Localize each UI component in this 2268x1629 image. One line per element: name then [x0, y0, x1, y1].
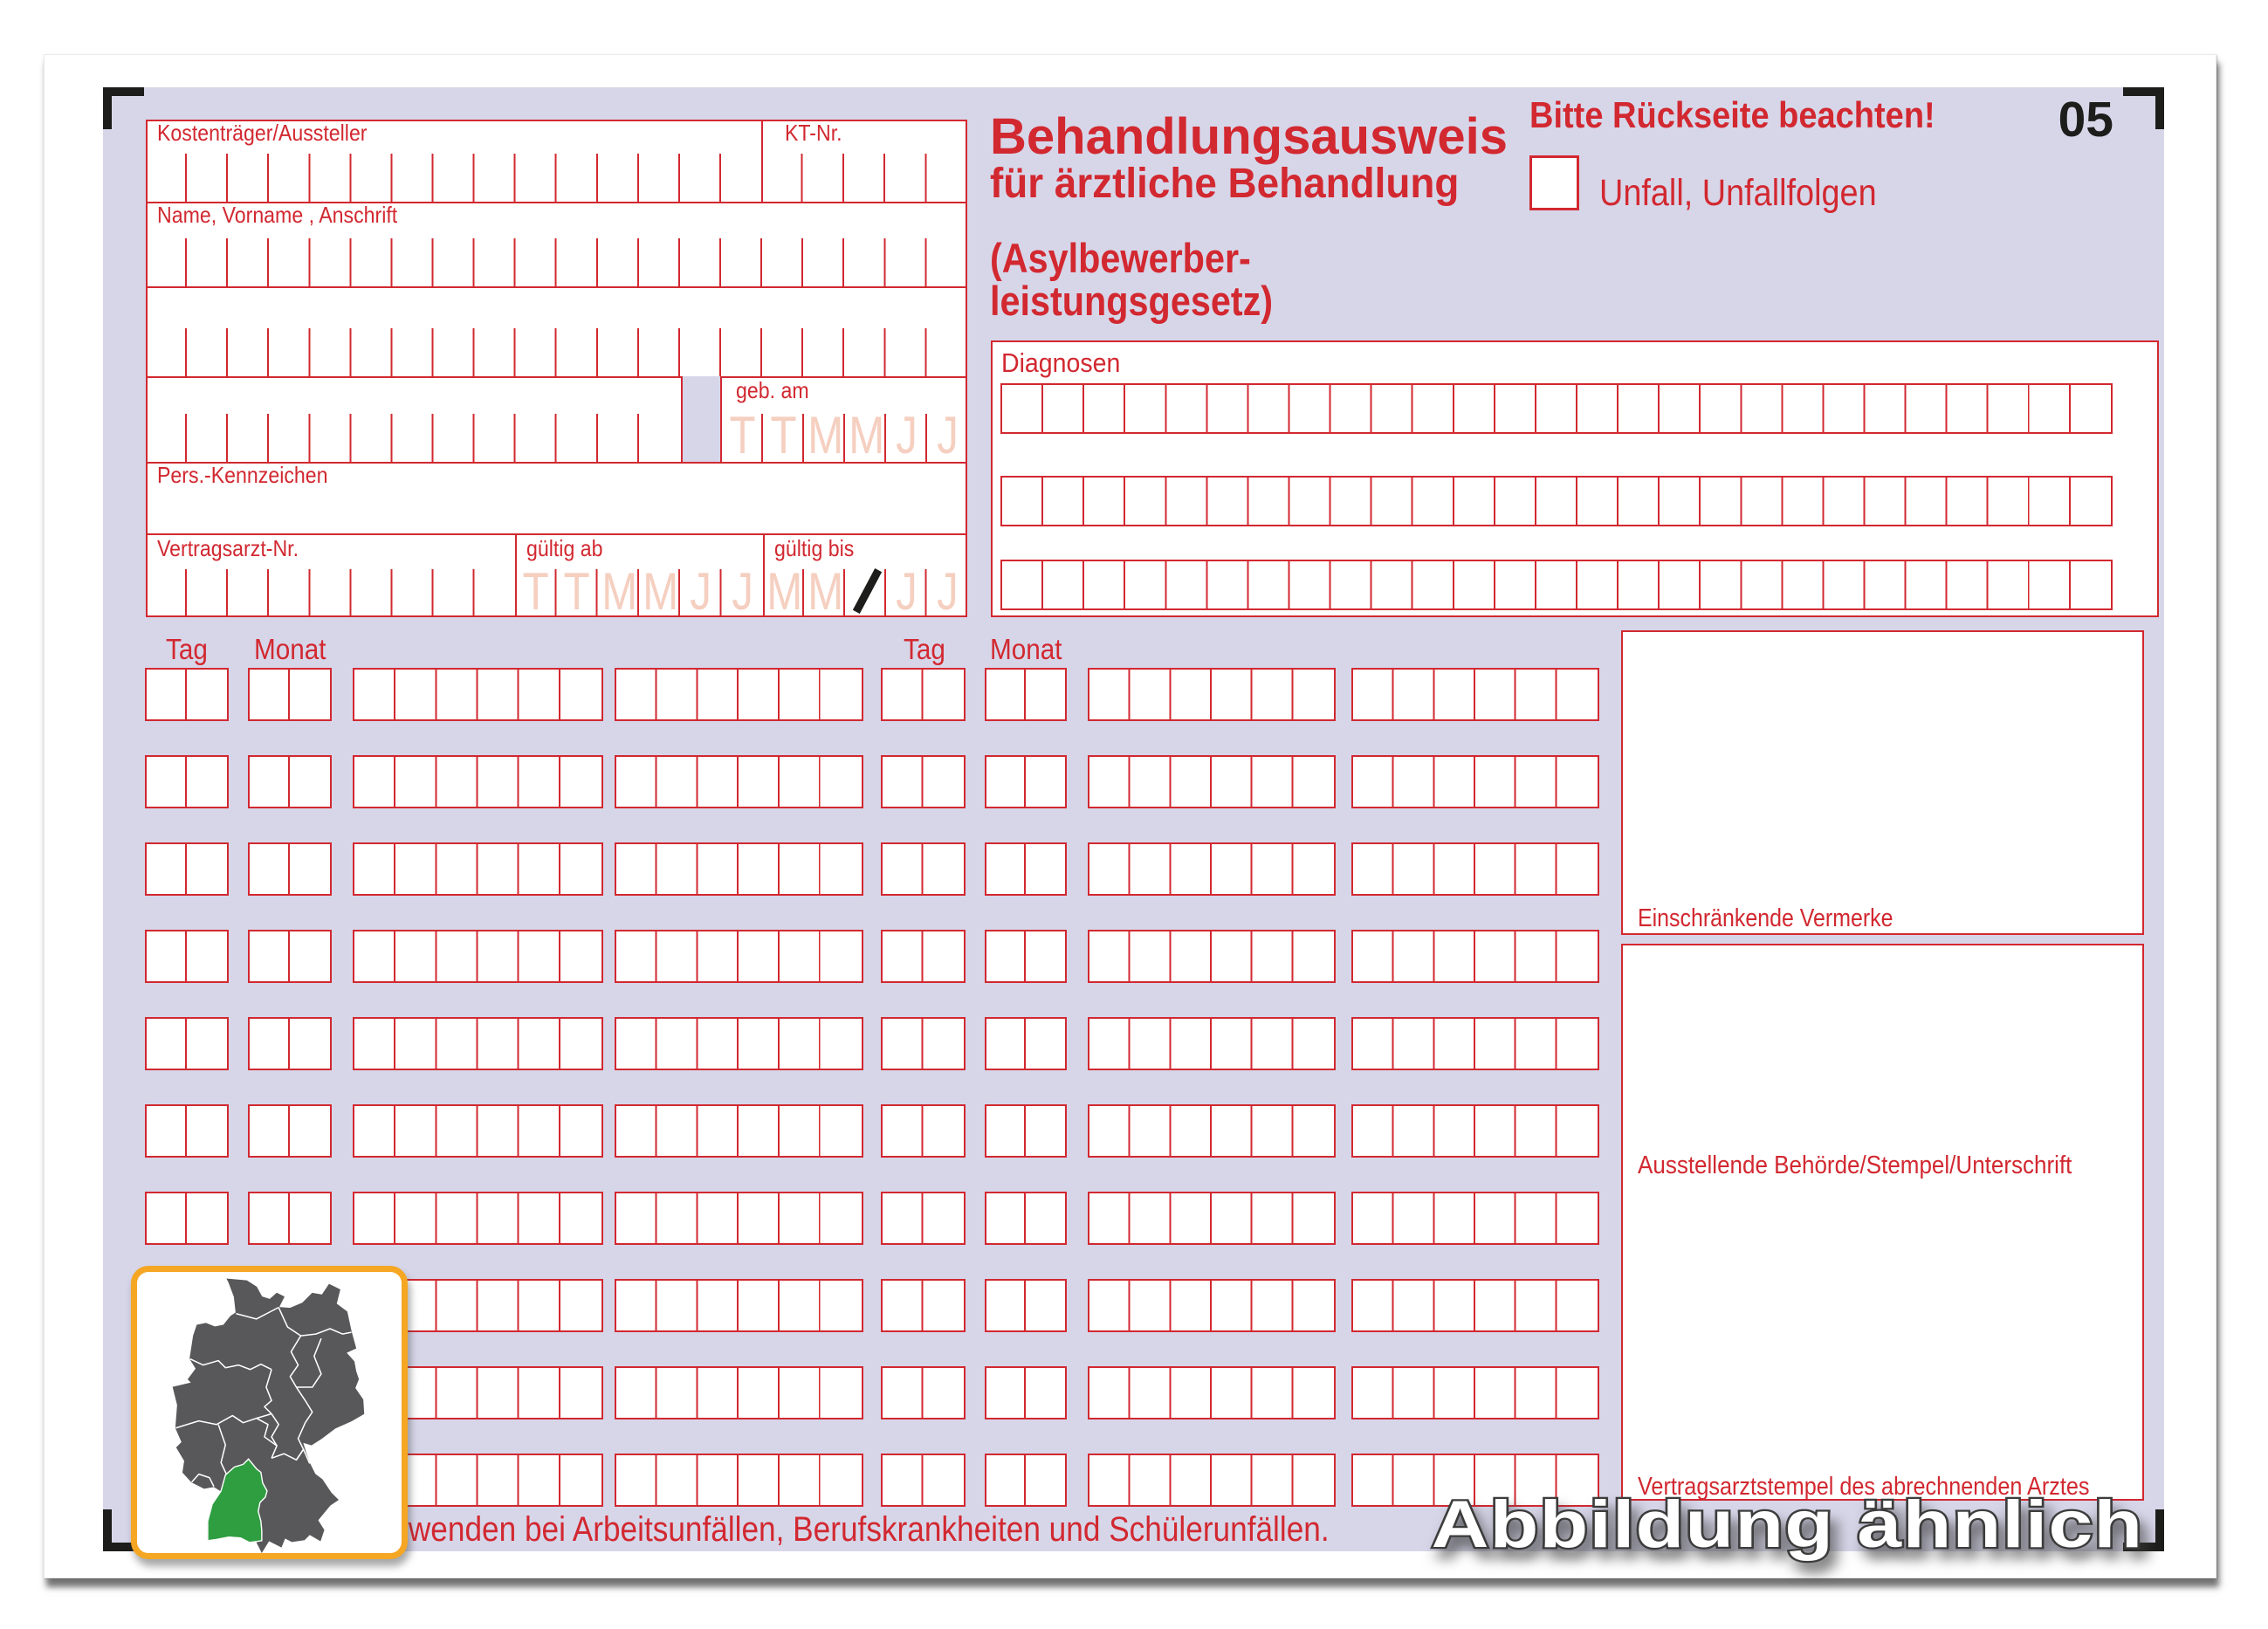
svg-text:Abbildung ähnlich: Abbildung ähnlich: [1432, 1487, 2144, 1561]
